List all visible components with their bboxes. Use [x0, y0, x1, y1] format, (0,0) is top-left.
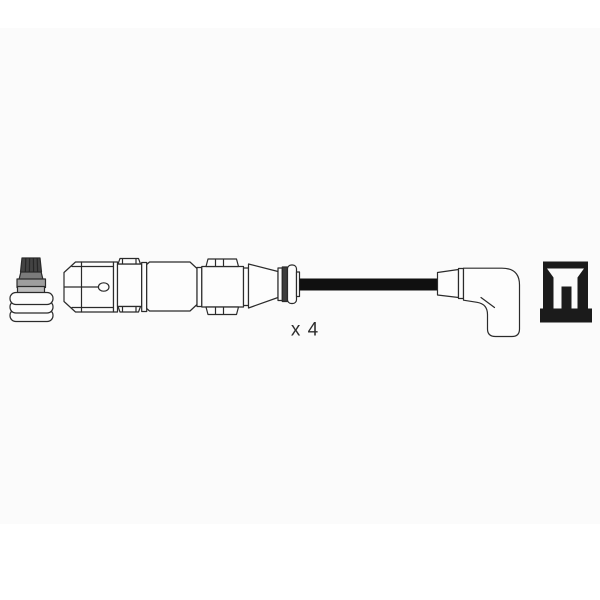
tab-housing: [118, 264, 142, 307]
boot-step: [459, 269, 464, 299]
locking-tab-bottom: [118, 307, 141, 313]
icon-top-bar: [543, 262, 588, 269]
product-image: x 4: [0, 0, 600, 600]
ignition-lead-drawing: x 4: [0, 0, 600, 600]
quantity-label: x 4: [291, 320, 319, 341]
connector-neck: [19, 272, 43, 280]
barrel-step: [197, 268, 202, 307]
ignition-cable: [300, 279, 438, 291]
knurled-ring: [282, 267, 287, 302]
locking-tab-top: [118, 259, 141, 265]
spacer-ring: [278, 268, 282, 301]
retainer-eyelet: [98, 283, 109, 291]
cable-crimp: [438, 270, 459, 298]
icon-base: [540, 309, 592, 323]
icon-center-pin: [562, 287, 572, 309]
knurled-cap: [21, 258, 42, 272]
clip-tab-bottom: [206, 307, 239, 315]
cable-entry-step: [297, 272, 300, 297]
clip-tab-top: [206, 259, 239, 267]
clip-housing: [202, 267, 244, 308]
band-ring: [142, 263, 147, 312]
bellows-ring-top: [10, 293, 53, 305]
bell-collar: [288, 265, 297, 304]
cone-step: [244, 268, 249, 306]
connector-barrel: [147, 262, 197, 311]
